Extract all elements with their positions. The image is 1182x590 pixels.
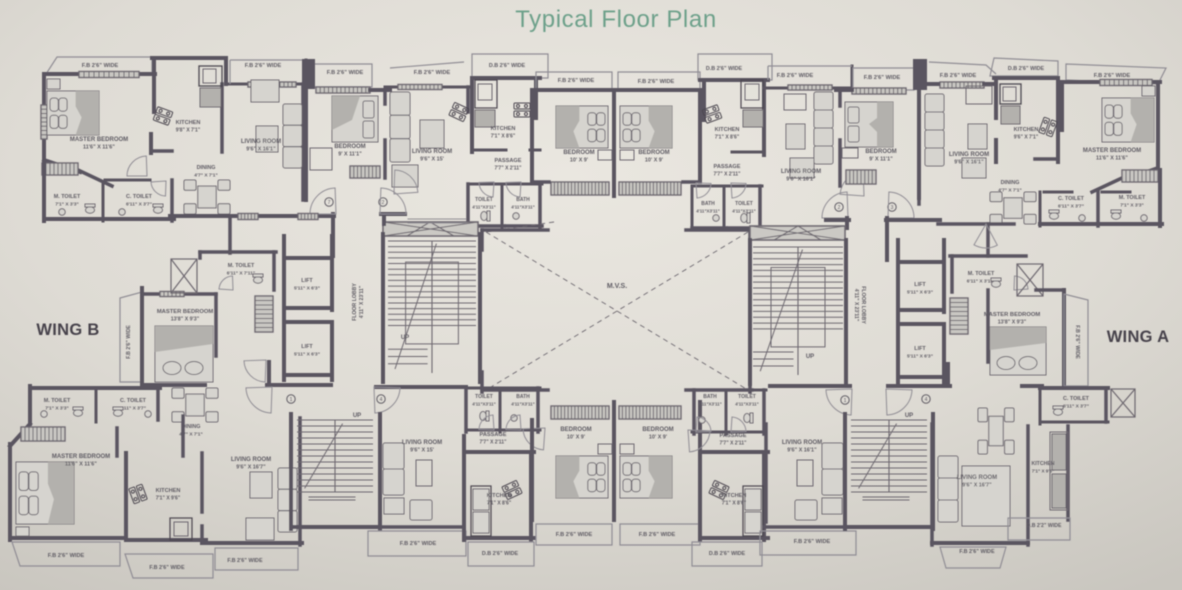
svg-text:F.B 2'6” WIDE: F.B 2'6” WIDE (126, 325, 132, 359)
svg-text:BEDROOM: BEDROOM (334, 144, 365, 150)
svg-text:F.B 2'6” WIDE: F.B 2'6” WIDE (414, 70, 451, 76)
svg-text:BEDROOM: BEDROOM (560, 427, 591, 433)
svg-text:6'11” X 3'7”: 6'11” X 3'7” (1058, 204, 1085, 210)
svg-text:LIVING ROOM: LIVING ROOM (412, 149, 452, 155)
svg-text:PASSAGE: PASSAGE (495, 158, 522, 164)
svg-text:KITCHEN: KITCHEN (487, 493, 512, 499)
svg-text:4'11”X3'11”: 4'11”X3'11” (698, 402, 722, 407)
svg-text:BATH: BATH (516, 394, 530, 400)
svg-text:F.B 2'6” WIDE: F.B 2'6” WIDE (638, 79, 675, 85)
svg-text:BATH: BATH (703, 394, 717, 400)
svg-text:7'1” X 9'6”: 7'1” X 9'6” (1032, 469, 1055, 474)
svg-text:7'1” X 3'3”: 7'1” X 3'3” (55, 202, 79, 208)
svg-text:9'6” X 16'7”: 9'6” X 16'7” (962, 483, 992, 489)
svg-text:Typical Floor Plan: Typical Floor Plan (515, 6, 717, 33)
svg-text:7'1” X 8'6”: 7'1” X 8'6” (722, 501, 747, 507)
svg-text:M.V.S.: M.V.S. (607, 283, 627, 290)
svg-text:10' X 9': 10' X 9' (567, 435, 585, 441)
svg-text:BATH: BATH (516, 197, 530, 203)
svg-text:LIVING ROOM: LIVING ROOM (949, 152, 989, 158)
svg-text:TOILET: TOILET (475, 394, 493, 400)
svg-text:MASTER BEDROOM: MASTER BEDROOM (52, 454, 110, 460)
svg-text:MASTER BEDROOM: MASTER BEDROOM (1083, 148, 1141, 154)
svg-text:13'8” X 9'3”: 13'8” X 9'3” (998, 320, 1027, 326)
svg-text:F.B 2'6” WIDE: F.B 2'6” WIDE (556, 532, 593, 538)
svg-text:BATH: BATH (701, 201, 715, 207)
svg-text:5'11” X 6'3”: 5'11” X 6'3” (907, 290, 934, 296)
svg-text:F.B 2'6” WIDE: F.B 2'6” WIDE (639, 532, 676, 538)
svg-text:4'11”X3'11”: 4'11”X3'11” (472, 205, 496, 210)
svg-text:F.B 2'6” WIDE: F.B 2'6” WIDE (227, 558, 263, 564)
svg-text:10' X 9': 10' X 9' (649, 435, 667, 441)
svg-text:PASSAGE: PASSAGE (714, 164, 741, 170)
svg-text:7'1” X 8'6”: 7'1” X 8'6” (715, 135, 740, 141)
svg-text:6'11” X 3'7”: 6'11” X 3'7” (120, 406, 147, 412)
svg-text:2: 2 (838, 205, 841, 211)
svg-text:F.B 2'6” WIDE: F.B 2'6” WIDE (558, 78, 595, 84)
svg-text:WING B: WING B (36, 321, 99, 339)
svg-text:13'8” X 9'3”: 13'8” X 9'3” (171, 317, 200, 323)
svg-text:KITCHEN: KITCHEN (1014, 127, 1039, 133)
svg-text:C. TOILET: C. TOILET (1058, 196, 1085, 202)
svg-text:LIFT: LIFT (914, 282, 926, 288)
svg-text:F.B 2'6” WIDE: F.B 2'6” WIDE (82, 63, 119, 69)
svg-text:LIVING ROOM: LIVING ROOM (402, 440, 442, 446)
svg-text:LIVING ROOM: LIVING ROOM (782, 440, 822, 446)
svg-text:BEDROOM: BEDROOM (865, 149, 896, 155)
svg-text:WING A: WING A (1107, 328, 1170, 346)
svg-text:KITCHEN: KITCHEN (722, 493, 747, 499)
svg-text:7: 7 (328, 200, 331, 206)
svg-text:10' X 9': 10' X 9' (570, 158, 588, 164)
svg-text:9' X 11'1”: 9' X 11'1” (338, 152, 362, 158)
svg-text:UP: UP (806, 354, 814, 360)
svg-text:F.B 2'6” WIDE: F.B 2'6” WIDE (777, 73, 814, 79)
svg-text:6'11” X 7'11”: 6'11” X 7'11” (227, 271, 256, 277)
svg-text:F.B 2'6” WIDE: F.B 2'6” WIDE (400, 541, 437, 547)
svg-text:D.B 2'6” WIDE: D.B 2'6” WIDE (489, 63, 526, 69)
svg-text:4'7” X 7'1”: 4'7” X 7'1” (194, 173, 218, 179)
svg-text:M. TOILET: M. TOILET (1119, 195, 1146, 201)
svg-text:9'8” X 7'1”: 9'8” X 7'1” (176, 128, 201, 134)
svg-text:5'11” X 6'3”: 5'11” X 6'3” (294, 286, 321, 292)
svg-text:4'11”X3'11”: 4'11”X3'11” (511, 205, 535, 210)
svg-text:TOILET: TOILET (735, 201, 753, 207)
svg-text:9'6” X 7'1”: 9'6” X 7'1” (1014, 135, 1039, 141)
svg-text:LIFT: LIFT (301, 278, 313, 284)
svg-text:9'6” X 15': 9'6” X 15' (420, 157, 444, 163)
svg-text:DINING: DINING (197, 165, 216, 171)
svg-text:C. TOILET: C. TOILET (1063, 396, 1090, 402)
svg-text:FLOOR LOBBY: FLOOR LOBBY (352, 283, 358, 321)
svg-text:F.B 2'6” WIDE: F.B 2'6” WIDE (794, 539, 831, 545)
svg-text:BEDROOM: BEDROOM (642, 427, 673, 433)
svg-text:1: 1 (290, 397, 293, 403)
svg-text:11'6” X 11'6”: 11'6” X 11'6” (1096, 156, 1128, 162)
svg-text:4'11”X3'11”: 4'11”X3'11” (732, 209, 756, 214)
svg-text:10' X 9': 10' X 9' (645, 158, 663, 164)
svg-text:F.B 2'6” WIDE: F.B 2'6” WIDE (1094, 73, 1131, 79)
svg-text:7'1” X 3'3”: 7'1” X 3'3” (45, 406, 69, 412)
svg-text:9'6” X 16'7”: 9'6” X 16'7” (236, 465, 266, 471)
svg-text:F.B 2'6” WIDE: F.B 2'6” WIDE (940, 73, 977, 79)
svg-text:LIVING ROOM: LIVING ROOM (241, 139, 281, 145)
svg-text:F.B 2'6” WIDE: F.B 2'6” WIDE (149, 565, 185, 571)
svg-text:F.B 2'6” WIDE: F.B 2'6” WIDE (1074, 325, 1080, 359)
svg-text:9'6” X 15': 9'6” X 15' (410, 448, 434, 454)
svg-text:4'11” X 23'11”: 4'11” X 23'11” (359, 285, 365, 318)
svg-text:9' X 11'1”: 9' X 11'1” (869, 157, 893, 163)
svg-text:C. TOILET: C. TOILET (126, 194, 153, 200)
svg-text:M. TOILET: M. TOILET (54, 194, 81, 200)
svg-text:9'6” X 16'1”: 9'6” X 16'1” (787, 448, 817, 454)
svg-text:4'11”X3'11”: 4'11”X3'11” (696, 209, 720, 214)
svg-text:FLOOR LOBBY: FLOOR LOBBY (860, 286, 866, 324)
svg-text:MASTER BEDROOM: MASTER BEDROOM (70, 137, 128, 143)
svg-text:7'1” X 3'3”: 7'1” X 3'3” (1120, 203, 1144, 209)
svg-text:UP: UP (401, 335, 409, 341)
svg-text:4: 4 (380, 397, 383, 403)
svg-text:F.B 2'6” WIDE: F.B 2'6” WIDE (864, 75, 901, 81)
svg-text:UP: UP (353, 413, 361, 419)
svg-text:BEDROOM: BEDROOM (563, 150, 594, 156)
svg-text:D.B 2'6” WIDE: D.B 2'6” WIDE (1008, 66, 1045, 72)
svg-text:7'7” X 2'11”: 7'7” X 2'11” (494, 166, 522, 172)
svg-text:11'6” X 11'6”: 11'6” X 11'6” (83, 145, 115, 151)
svg-text:LIFT: LIFT (301, 344, 313, 350)
svg-text:KITCHEN: KITCHEN (176, 120, 201, 126)
svg-text:LIVING ROOM: LIVING ROOM (957, 475, 997, 481)
svg-text:4'11” X 23'11”: 4'11” X 23'11” (853, 289, 859, 322)
svg-text:9'6” X 16'1”: 9'6” X 16'1” (246, 147, 276, 153)
svg-text:TOILET: TOILET (738, 394, 756, 400)
svg-text:4'11”X3'11”: 4'11”X3'11” (511, 402, 535, 407)
svg-text:6'11” X 3'7”: 6'11” X 3'7” (1063, 404, 1090, 410)
svg-text:7'7” X 2'11”: 7'7” X 2'11” (713, 172, 741, 178)
svg-text:MASTER BEDROOM: MASTER BEDROOM (984, 312, 1041, 318)
svg-text:PASSAGE: PASSAGE (720, 433, 747, 439)
svg-text:7'1” X 8'6”: 7'1” X 8'6” (487, 501, 512, 507)
svg-text:D.B 2'6” WIDE: D.B 2'6” WIDE (706, 66, 743, 72)
svg-text:TOILET: TOILET (475, 197, 493, 203)
svg-text:6'11” X 3'7”: 6'11” X 3'7” (126, 202, 153, 208)
svg-text:D.B 2'2” WIDE: D.B 2'2” WIDE (1027, 523, 1062, 529)
svg-text:4'11”X3'11”: 4'11”X3'11” (735, 402, 759, 407)
svg-text:4: 4 (925, 397, 928, 403)
svg-text:F.B 2'6” WIDE: F.B 2'6” WIDE (327, 70, 364, 76)
svg-text:M. TOILET: M. TOILET (44, 398, 71, 404)
svg-text:UP: UP (905, 413, 913, 419)
svg-text:7'7” X 2'11”: 7'7” X 2'11” (719, 441, 747, 447)
svg-text:LIVING ROOM: LIVING ROOM (781, 169, 821, 175)
svg-text:M. TOILET: M. TOILET (968, 271, 995, 277)
svg-text:F.B 2'6” WIDE: F.B 2'6” WIDE (959, 549, 995, 555)
svg-text:3: 3 (891, 205, 894, 211)
svg-text:5'11” X 6'3”: 5'11” X 6'3” (294, 352, 321, 358)
svg-text:KITCHEN: KITCHEN (491, 126, 516, 132)
svg-text:PASSAGE: PASSAGE (480, 432, 507, 438)
svg-text:F.B 2'6” WIDE: F.B 2'6” WIDE (48, 553, 85, 559)
svg-text:F.B 2'6” WIDE: F.B 2'6” WIDE (245, 63, 282, 69)
svg-text:D.B 2'6” WIDE: D.B 2'6” WIDE (709, 551, 746, 557)
svg-text:LIVING ROOM: LIVING ROOM (231, 457, 271, 463)
svg-text:9'6” X 16'1”: 9'6” X 16'1” (786, 177, 816, 183)
svg-text:LIFT: LIFT (914, 346, 926, 352)
svg-text:2: 2 (382, 200, 385, 206)
svg-text:7'1” X 9'6”: 7'1” X 9'6” (156, 496, 181, 502)
svg-text:1: 1 (844, 398, 847, 404)
svg-text:11'6” X 11'6”: 11'6” X 11'6” (65, 462, 97, 468)
svg-text:KITCHEN: KITCHEN (156, 488, 181, 494)
svg-text:MASTER BEDROOM: MASTER BEDROOM (157, 309, 214, 315)
svg-text:M. TOILET: M. TOILET (228, 263, 255, 269)
svg-text:C. TOILET: C. TOILET (120, 398, 147, 404)
svg-text:BEDROOM: BEDROOM (638, 150, 669, 156)
svg-text:4'11”X3'11”: 4'11”X3'11” (472, 402, 496, 407)
svg-text:KITCHEN: KITCHEN (715, 127, 740, 133)
svg-text:5'11” X 6'3”: 5'11” X 6'3” (907, 354, 934, 360)
svg-text:7'7” X 2'11”: 7'7” X 2'11” (479, 440, 507, 446)
svg-text:D.B 2'6” WIDE: D.B 2'6” WIDE (482, 551, 519, 557)
svg-text:9'6” X 16'1”: 9'6” X 16'1” (954, 160, 984, 166)
svg-text:7'1” X 8'6”: 7'1” X 8'6” (491, 134, 516, 140)
svg-text:DINING: DINING (1001, 180, 1020, 186)
svg-text:KITCHEN: KITCHEN (1031, 461, 1054, 467)
